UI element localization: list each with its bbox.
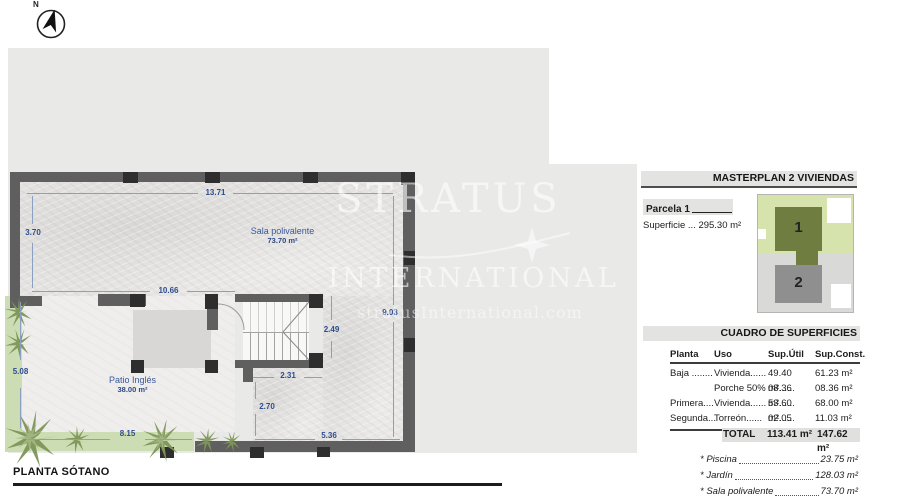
extra-value: 128.03 m² [815,468,858,484]
site-building-1: 1 [775,207,822,251]
column [205,172,220,183]
wall [243,360,253,382]
stair-treads-upper [243,302,309,332]
dim-line [255,414,256,436]
plan-title-rule [13,483,502,486]
dim-line [304,377,322,378]
parcela-label: Parcela 1 [643,204,690,215]
room-name: Patio Inglés [90,375,175,385]
superficie-text: Superficie ... 295.30 m² [643,220,741,231]
site-diagram: 1 2 [757,194,854,313]
dim-line [393,196,394,305]
extras-list: * Piscina 23.75 m² * Jardín 128.03 m² * … [700,452,858,500]
column [309,353,323,368]
site-notch [831,284,851,308]
site-building-2-number: 2 [775,274,822,291]
extra-name: * Piscina [700,452,737,468]
column [309,294,323,308]
surfaces-table: Planta Uso Sup.Útil Sup.Const. Baja ....… [670,347,860,431]
extra-value: 73.70 m² [821,484,859,500]
dim-line [28,439,110,440]
extra-name: * Jardín [700,468,733,484]
wall [403,172,415,452]
dim-label-right: 9.03 [377,309,403,317]
floorplan-page: N [0,0,900,500]
room-label-patio: Patio Inglés 38.00 m² [90,375,175,394]
room-area: 73.70 m² [230,236,335,245]
column [317,447,330,457]
column [205,360,218,373]
surfaces-header: CUADRO DE SUPERFICIES [643,326,860,341]
dim-line [145,439,192,440]
dim-line [27,193,198,194]
plan-title: PLANTA SÓTANO [13,466,110,478]
dim-label-bottom-right: 5.36 [314,432,344,440]
site-building-1-number: 1 [775,219,822,236]
dim-line [393,322,394,437]
list-item: * Jardín 128.03 m² [700,468,858,484]
room-area: 38.00 m² [90,385,175,394]
column [130,294,145,307]
column [160,447,174,458]
plan-backdrop-extension [549,164,637,453]
sala-floor [20,182,403,296]
column [401,172,415,185]
dim-label-lower: 2.70 [250,403,284,411]
site-building-1-neck [796,251,818,265]
column [123,172,138,183]
dim-line [342,439,400,440]
dim-label-left: 3.70 [20,229,46,237]
compass-icon [30,6,74,42]
column [250,447,264,458]
site-building-2: 2 [775,265,822,303]
dotted-leader [739,452,819,464]
dim-label-stair-h: 2.49 [318,326,345,334]
column [205,294,218,309]
surfaces-table-header-row: Planta Uso Sup.Útil Sup.Const. [670,347,860,364]
dim-line [331,296,332,320]
extra-name: * Sala polivalente [700,484,773,500]
total-row: TOTAL 113.41 m² 147.62 m² [722,428,860,442]
table-row: Baja ........ Vivienda...... 49.40 m²...… [670,366,860,381]
site-notch [758,229,766,239]
col-header: Sup.Const. [815,347,860,362]
dim-line [255,382,256,399]
dotted-leader [775,484,818,496]
room-label-sala: Sala polivalente 73.70 m² [230,226,335,245]
column [404,338,415,352]
dim-line [187,291,235,292]
stair-treads-lower [243,332,309,361]
masterplan-header: MASTERPLAN 2 VIVIENDAS [641,171,857,188]
site-notch [827,198,851,223]
dim-label-mid: 10.66 [150,287,187,295]
dim-label-garden-h: 8.15 [110,430,145,438]
room-name: Sala polivalente [230,226,335,236]
wall [10,296,42,306]
dim-label-garden-v: 5.08 [8,368,33,376]
dim-label-top: 13.71 [198,189,233,197]
column [131,360,144,373]
dim-line [20,302,21,360]
dim-line [20,388,21,428]
dim-line [32,196,33,224]
col-header: Sup.Útil [768,347,815,362]
list-item: * Sala polivalente 73.70 m² [700,484,858,500]
right-section-floor [323,296,403,441]
ramp-slab [133,310,211,368]
table-row: Segunda... Torreón...... 02.05 m²...... … [670,411,860,426]
dim-line [255,439,315,440]
list-item: * Piscina 23.75 m² [700,452,858,468]
dim-line [331,341,332,358]
dim-line [32,243,33,288]
dim-line [233,193,393,194]
col-header: Planta [670,347,714,362]
column [303,172,318,183]
dim-label-stair-w: 2.31 [271,372,305,380]
dim-line [32,291,150,292]
extra-value: 23.75 m² [821,452,859,468]
table-row: Porche 50% 08.36 m²...... 08.36 m² [670,381,860,396]
col-header: Uso [714,347,768,362]
cell-planta: Segunda... [670,411,714,441]
parcela-underline [692,212,732,213]
wall [10,172,20,308]
dotted-leader [735,468,813,480]
table-row: Primera.... Vivienda...... 53.60 m².....… [670,396,860,411]
wall [195,441,415,452]
column [404,251,415,265]
